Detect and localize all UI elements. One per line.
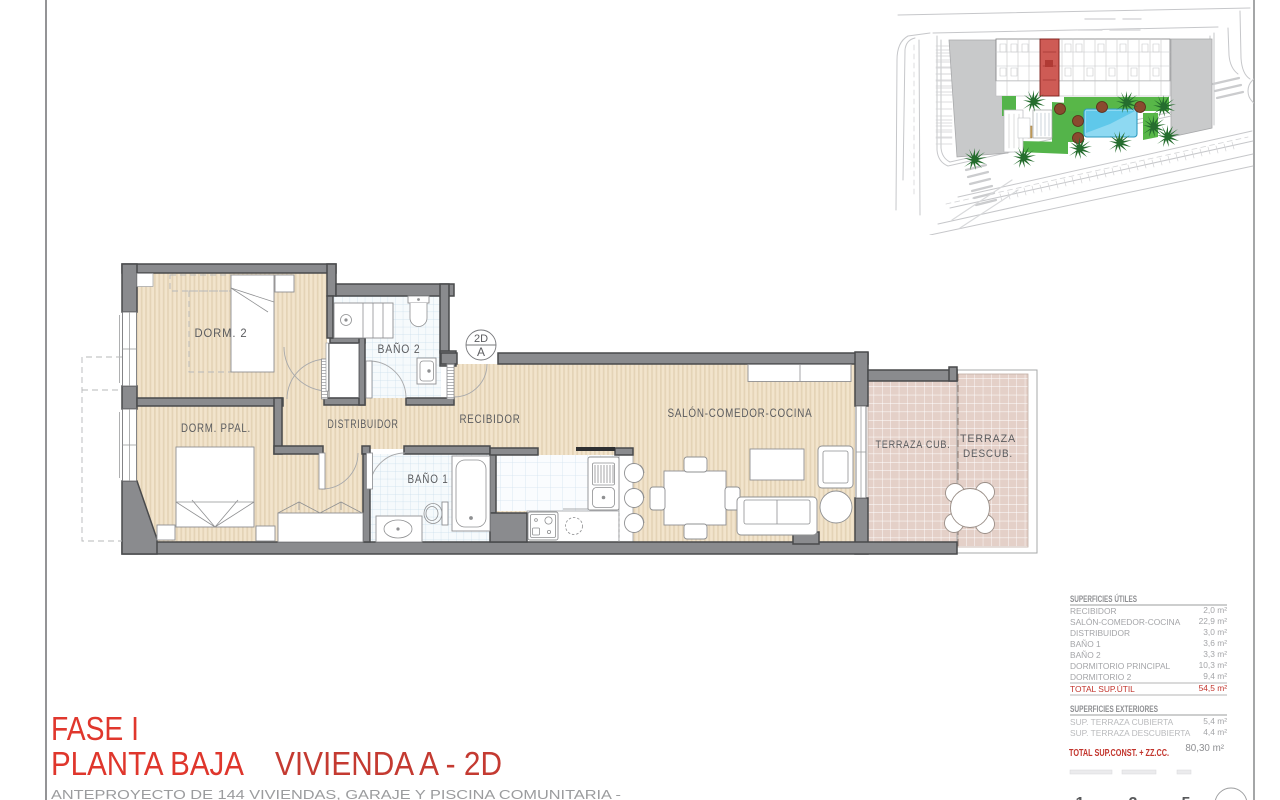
svg-text:PLANTA BAJA: PLANTA BAJA — [51, 745, 244, 782]
svg-text:RECIBIDOR: RECIBIDOR — [460, 414, 521, 426]
svg-text:TOTAL SUP.ÚTIL: TOTAL SUP.ÚTIL — [1070, 684, 1135, 694]
svg-text:DESCUB.: DESCUB. — [963, 448, 1013, 460]
svg-text:SALÓN-COMEDOR-COCINA: SALÓN-COMEDOR-COCINA — [668, 407, 813, 420]
svg-text:80,30 m²: 80,30 m² — [1185, 743, 1224, 754]
svg-text:54,5 m²: 54,5 m² — [1199, 683, 1228, 693]
svg-text:TOTAL SUP.CONST. + ZZ.CC.: TOTAL SUP.CONST. + ZZ.CC. — [1069, 748, 1169, 759]
svg-text:BAÑO 1: BAÑO 1 — [1070, 639, 1101, 649]
svg-text:A: A — [477, 345, 485, 359]
svg-text:5,4 m²: 5,4 m² — [1203, 716, 1227, 726]
svg-text:3,0 m²: 3,0 m² — [1203, 627, 1227, 637]
svg-text:ANTEPROYECTO DE 144 VIVIENDAS,: ANTEPROYECTO DE 144 VIVIENDAS, GARAJE Y … — [51, 788, 621, 800]
svg-text:22,9 m²: 22,9 m² — [1199, 616, 1228, 626]
svg-text:BAÑO 2: BAÑO 2 — [1070, 650, 1101, 660]
svg-text:3,3 m²: 3,3 m² — [1203, 649, 1227, 659]
svg-text:DORM. 2: DORM. 2 — [195, 328, 248, 340]
svg-text:BAÑO 1: BAÑO 1 — [408, 473, 449, 486]
svg-text:TERRAZA CUB.: TERRAZA CUB. — [876, 439, 951, 451]
svg-text:SUPERFICIES EXTERIORES: SUPERFICIES EXTERIORES — [1070, 704, 1158, 714]
svg-text:1: 1 — [1076, 795, 1085, 800]
svg-text:SALÓN-COMEDOR-COCINA: SALÓN-COMEDOR-COCINA — [1070, 617, 1181, 627]
svg-text:10,3 m²: 10,3 m² — [1199, 660, 1228, 670]
svg-text:DORM. PPAL.: DORM. PPAL. — [181, 423, 251, 435]
svg-text:SUPERFICIES ÚTILES: SUPERFICIES ÚTILES — [1070, 593, 1137, 604]
svg-text:2,0 m²: 2,0 m² — [1203, 605, 1227, 615]
svg-text:5: 5 — [1182, 795, 1191, 800]
svg-text:DISTRIBUIDOR: DISTRIBUIDOR — [328, 419, 399, 431]
svg-text:SUP. TERRAZA DESCUBIERTA: SUP. TERRAZA DESCUBIERTA — [1070, 728, 1191, 738]
svg-text:DORMITORIO PRINCIPAL: DORMITORIO PRINCIPAL — [1070, 661, 1171, 671]
svg-text:9,4 m²: 9,4 m² — [1203, 671, 1227, 681]
svg-text:DISTRIBUIDOR: DISTRIBUIDOR — [1070, 628, 1130, 638]
svg-text:TERRAZA: TERRAZA — [960, 433, 1016, 445]
svg-text:RECIBIDOR: RECIBIDOR — [1070, 606, 1117, 616]
svg-text:2D: 2D — [474, 333, 488, 345]
svg-text:VIVIENDA A - 2D: VIVIENDA A - 2D — [275, 745, 502, 782]
svg-text:FASE I: FASE I — [51, 710, 139, 747]
svg-text:SUP. TERRAZA CUBIERTA: SUP. TERRAZA CUBIERTA — [1070, 717, 1174, 727]
svg-text:4,4 m²: 4,4 m² — [1203, 727, 1227, 737]
svg-text:3,6 m²: 3,6 m² — [1203, 638, 1227, 648]
svg-text:2: 2 — [1129, 795, 1138, 800]
svg-text:DORMITORIO 2: DORMITORIO 2 — [1070, 672, 1132, 682]
svg-text:BAÑO 2: BAÑO 2 — [378, 343, 421, 356]
